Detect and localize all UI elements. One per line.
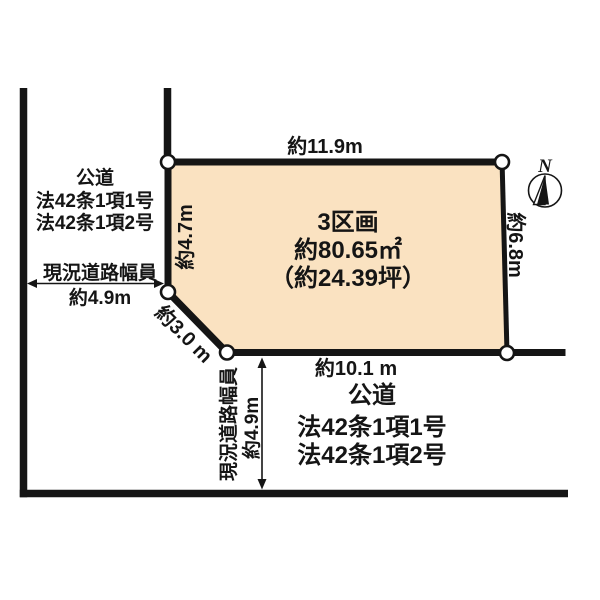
dimension-left: 約4.7m — [173, 204, 197, 270]
dimension-top: 約11.9m — [287, 134, 363, 158]
bottom-road-width-label: 現況道路幅員 — [217, 367, 240, 481]
vertex-marker-bottom-left — [220, 346, 234, 360]
left-road-law2: 法42条1項2号 — [36, 211, 154, 234]
dimension-right: 約6.8m — [504, 212, 528, 278]
bottom-road-type: 公道 — [348, 381, 396, 409]
parcel-area-tsubo: （約24.39坪） — [270, 264, 426, 292]
parcel-name: 3区画 — [317, 209, 378, 236]
bottom-road-law2: 法42条1項2号 — [297, 442, 446, 469]
bottom-road-law1: 法42条1項1号 — [297, 414, 446, 441]
dimension-bottom: 約10.1 m — [315, 356, 397, 380]
vertex-marker-left-bottom — [161, 285, 175, 299]
bottom-road-width-value: 約4.9m — [240, 397, 263, 459]
left-road-type: 公道 — [76, 166, 114, 189]
land-plot-diagram: N 約11.9m 約10.1 m 約4.7m 約6.8m 約3.0 m 3区画 … — [0, 0, 600, 600]
parcel-area-sqm: 約80.65㎡ — [294, 236, 402, 264]
left-road-width-value: 約4.9m — [69, 286, 131, 309]
left-road-width-label: 現況道路幅員 — [43, 261, 157, 284]
vertex-marker-bottom-right — [500, 346, 514, 360]
vertex-marker-top-left — [161, 155, 175, 169]
vertex-marker-top-right — [495, 155, 509, 169]
plot-diagram-canvas: N 約11.9m 約10.1 m 約4.7m 約6.8m 約3.0 m 3区画 … — [0, 0, 600, 600]
left-road-law1: 法42条1項1号 — [36, 189, 154, 212]
